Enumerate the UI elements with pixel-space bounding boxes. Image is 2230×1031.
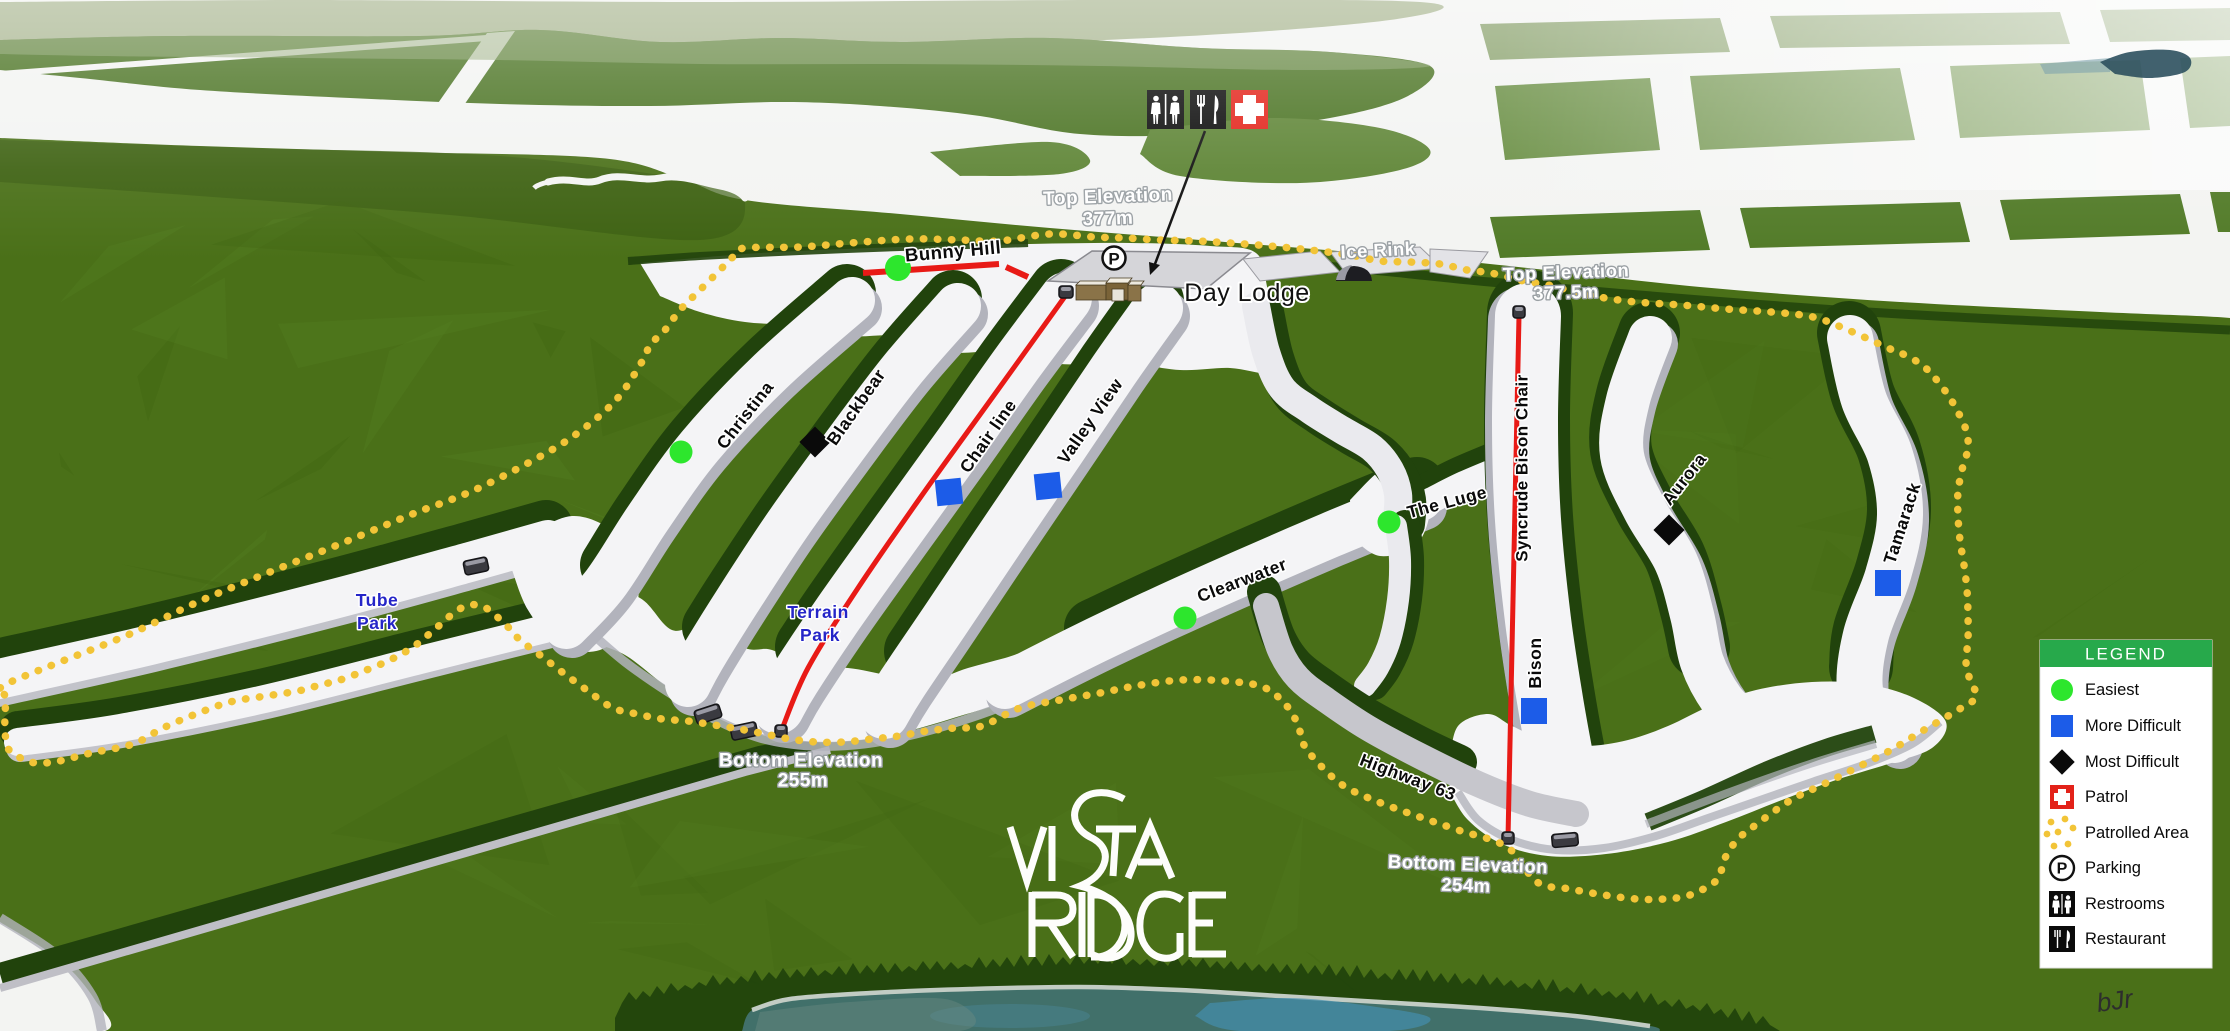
svg-text:Syncrude Bison Chair: Syncrude Bison Chair bbox=[1513, 374, 1532, 562]
svg-text:Patrol: Patrol bbox=[2085, 788, 2128, 806]
svg-text:Park: Park bbox=[800, 625, 840, 645]
svg-text:Most Difficult: Most Difficult bbox=[2085, 753, 2180, 771]
svg-text:More Difficult: More Difficult bbox=[2085, 717, 2181, 735]
svg-text:254m: 254m bbox=[1441, 874, 1491, 897]
svg-text:Easiest: Easiest bbox=[2085, 681, 2140, 699]
svg-text:Bottom Elevation: Bottom Elevation bbox=[719, 751, 883, 772]
svg-text:P: P bbox=[2057, 861, 2068, 878]
svg-text:Restrooms: Restrooms bbox=[2085, 895, 2165, 913]
svg-text:LEGEND: LEGEND bbox=[2085, 645, 2167, 664]
svg-text:Day Lodge: Day Lodge bbox=[1184, 279, 1309, 307]
svg-text:Park: Park bbox=[357, 613, 397, 633]
svg-text:Terrain: Terrain bbox=[787, 602, 849, 622]
svg-text:Bison: Bison bbox=[1525, 637, 1545, 688]
svg-text:Restaurant: Restaurant bbox=[2085, 930, 2166, 948]
svg-text:377.5m: 377.5m bbox=[1533, 280, 1599, 303]
svg-text:255m: 255m bbox=[778, 771, 829, 792]
svg-text:Tube: Tube bbox=[356, 590, 399, 610]
svg-text:Parking: Parking bbox=[2085, 859, 2141, 877]
svg-text:Patrolled Area: Patrolled Area bbox=[2085, 824, 2189, 842]
svg-text:bJr: bJr bbox=[2095, 983, 2136, 1018]
